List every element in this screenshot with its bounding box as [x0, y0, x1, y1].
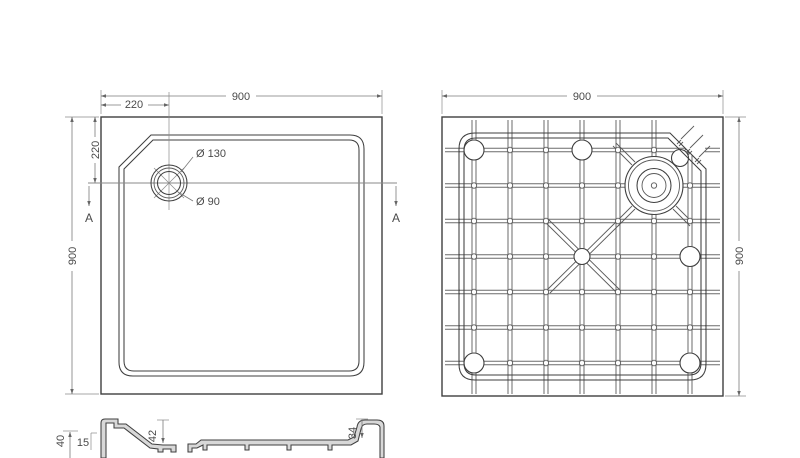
top-view: 900 220 900 220 [65, 89, 400, 394]
section-edge-height-label: 34 [347, 427, 359, 439]
bottom-view-height-label: 900 [734, 247, 746, 265]
technical-drawing: 900 220 900 220 [0, 0, 800, 458]
top-view-drain-offset-x-dimension: 220 [101, 98, 169, 111]
top-view-width-label: 900 [232, 91, 250, 103]
top-view-drain-offset-y-dimension: 220 [88, 117, 102, 183]
tray-inner-rim-inner [124, 140, 359, 371]
section-view: 40 15 42 34 [55, 419, 384, 458]
section-marker-left-label: A [85, 211, 93, 225]
drawing-canvas: 900 220 900 220 [0, 0, 800, 458]
bottom-view-width-dimension: 900 [442, 89, 723, 114]
section-left-shell [101, 419, 176, 458]
drain-outer-diameter-callout: Ø 130 [181, 148, 226, 172]
drain-offset-x-label: 220 [125, 99, 143, 111]
bottom-view-height-dimension: 900 [725, 117, 746, 396]
bottom-view-width-label: 900 [573, 91, 591, 103]
bottom-view: 900 900 [442, 89, 746, 396]
top-view-height-label: 900 [67, 247, 79, 265]
drain-offset-y-label: 220 [90, 141, 102, 159]
section-marker-left: A [85, 186, 93, 225]
section-drain-depth-label: 42 [147, 430, 159, 442]
drain-outer-diameter-label: Ø 130 [196, 148, 226, 160]
section-total-height-dimension: 40 [55, 431, 78, 458]
drain-inner-diameter-label: Ø 90 [196, 196, 220, 208]
tray-outer-edge [101, 117, 382, 394]
drain-inner-diameter-callout: Ø 90 [178, 192, 220, 208]
section-rim-height-dimension: 15 [77, 433, 97, 450]
section-marker-right-label: A [392, 211, 400, 225]
section-rim-height-label: 15 [77, 437, 89, 449]
section-total-height-label: 40 [55, 435, 67, 447]
section-marker-right: A [392, 186, 400, 225]
section-drain-depth-dimension: 42 [147, 420, 169, 443]
